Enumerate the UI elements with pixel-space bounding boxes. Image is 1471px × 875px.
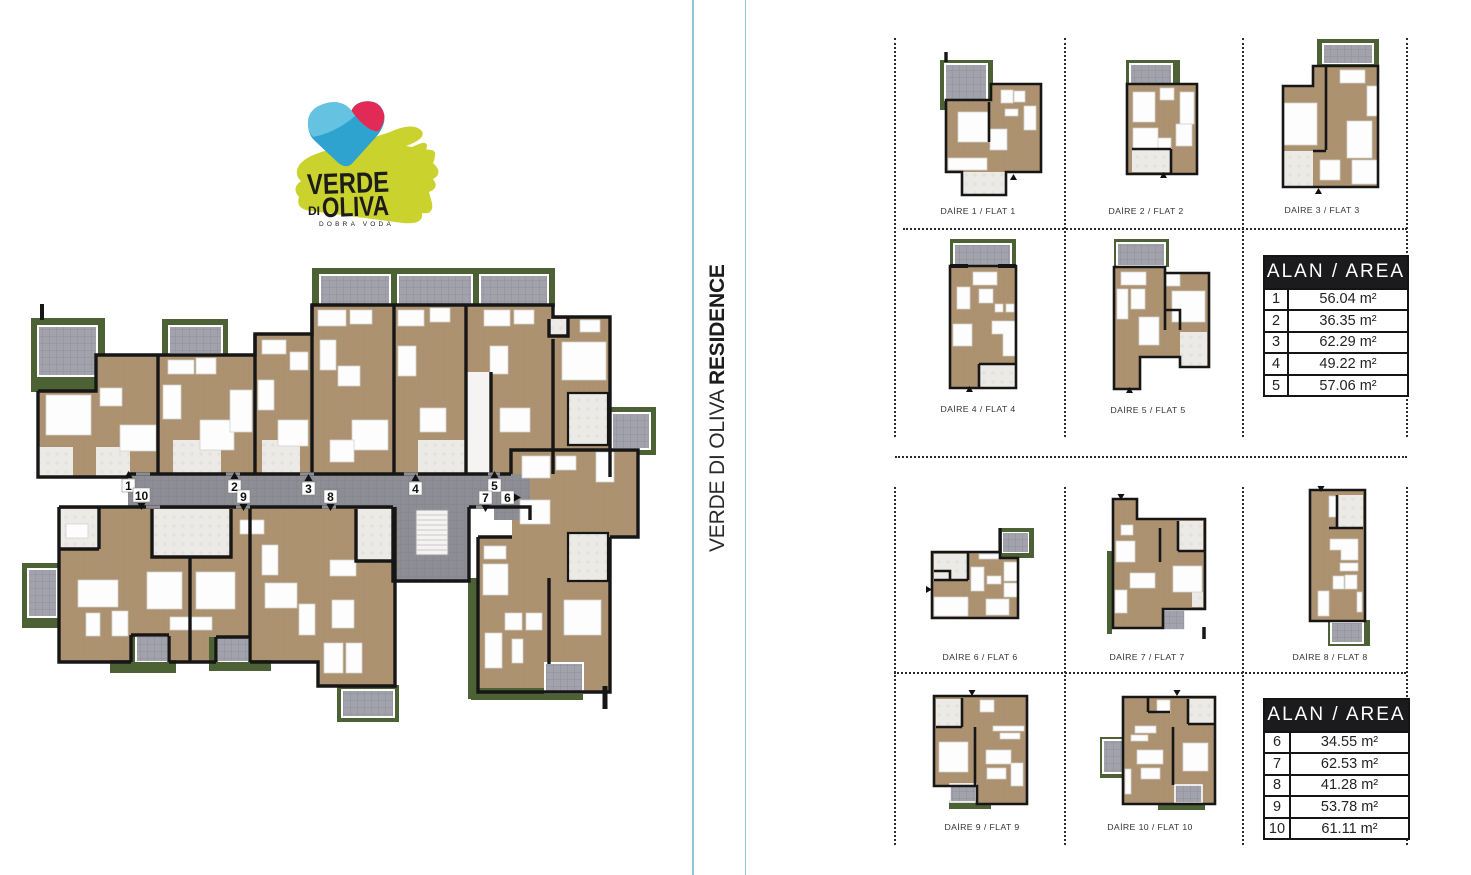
svg-text:8: 8: [327, 490, 334, 504]
svg-text:DOBRA VODA: DOBRA VODA: [319, 221, 394, 228]
svg-text:9: 9: [240, 490, 247, 504]
svg-text:10: 10: [135, 489, 149, 503]
svg-text:5: 5: [491, 479, 498, 493]
svg-text:7: 7: [482, 491, 489, 505]
svg-text:3: 3: [305, 482, 312, 496]
svg-text:6: 6: [504, 491, 511, 505]
svg-text:1: 1: [125, 479, 132, 493]
svg-text:DI: DI: [308, 204, 320, 218]
svg-text:OLIVA: OLIVA: [321, 190, 389, 223]
svg-text:2: 2: [231, 480, 238, 494]
svg-text:4: 4: [412, 482, 419, 496]
